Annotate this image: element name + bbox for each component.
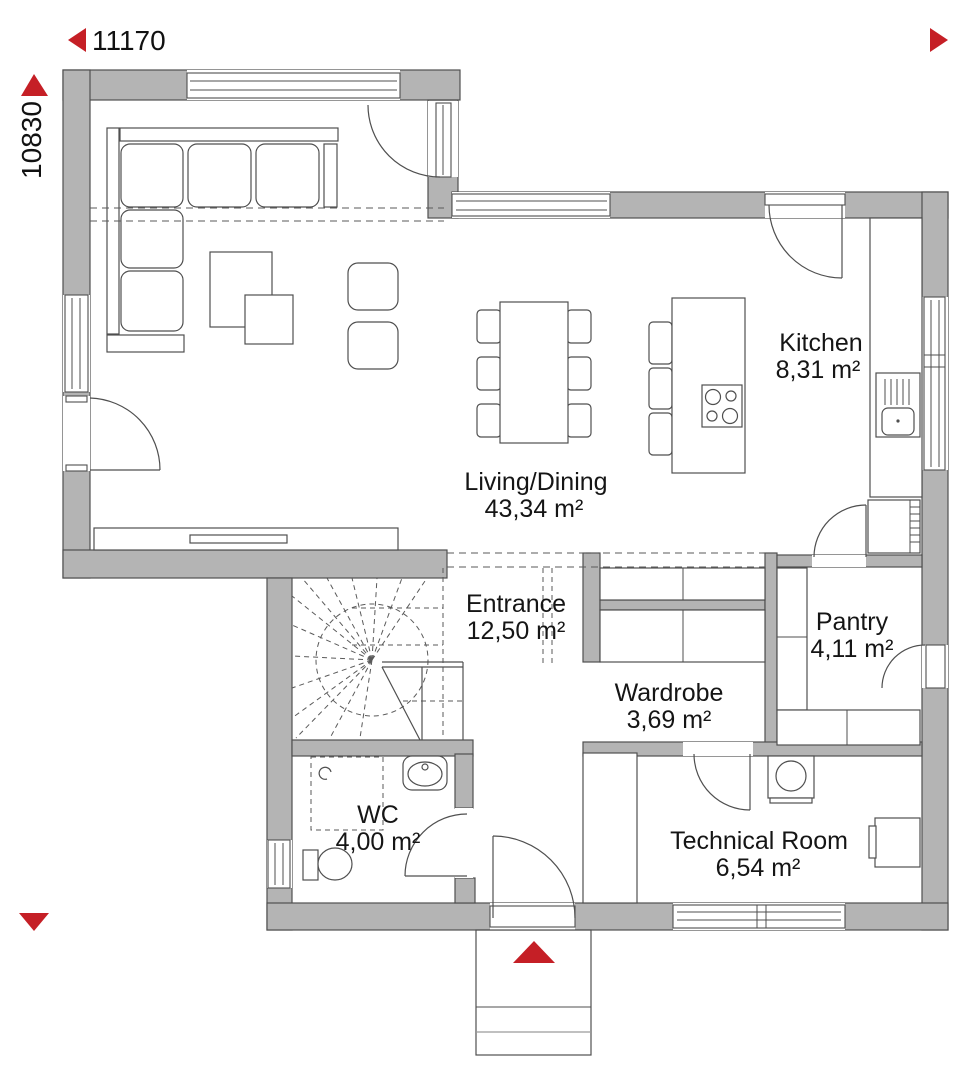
room-label-pantry-area: 4,11 m² (811, 635, 894, 663)
room-label-entrance-area: 12,50 m² (467, 617, 566, 645)
room-label-wardrobe-area: 3,69 m² (627, 706, 712, 734)
entrance-stoop (476, 930, 591, 1055)
room-label-kitchen-area: 8,31 m² (776, 356, 861, 384)
technical-room-door-icon (694, 754, 750, 810)
kitchen-counter (870, 218, 922, 497)
dimension-arrow-down-icon (19, 913, 49, 931)
height-dimension-label: 10830 (16, 101, 47, 179)
room-label-living-name: Living/Dining (464, 468, 607, 496)
dimension-arrow-left-icon (68, 28, 86, 52)
shower-drain-icon (319, 767, 331, 779)
floor-plan-page: 11170 10830 Living/Dining 43,34 m² Kitch… (0, 0, 977, 1080)
dimension-arrow-right-icon (930, 28, 948, 52)
floor-plan-canvas: 11170 10830 Living/Dining 43,34 m² Kitch… (0, 0, 977, 1080)
dining-table (477, 302, 591, 443)
room-label-wardrobe-name: Wardrobe (615, 679, 724, 707)
room-label-entrance-name: Entrance (466, 590, 566, 618)
kitchen-tall-cabinet (868, 500, 920, 553)
cooktop-icon (702, 385, 742, 427)
width-dimension-label: 11170 (92, 25, 166, 56)
living-west-door-icon (90, 398, 160, 470)
kitchen-sink-icon (876, 373, 920, 437)
installation-shaft (583, 753, 637, 903)
sideboard (94, 528, 398, 550)
room-label-technical-name: Technical Room (670, 827, 848, 855)
dimension-arrow-up-icon (21, 74, 48, 96)
kitchen-island (649, 298, 745, 473)
water-heater-icon (869, 818, 920, 867)
washing-machine-icon (768, 756, 814, 803)
wc-sink-icon (403, 756, 447, 790)
room-label-wc-area: 4,00 m² (336, 828, 421, 856)
room-label-technical-area: 6,54 m² (716, 854, 801, 882)
pouf (348, 263, 398, 369)
room-label-pantry-name: Pantry (816, 608, 889, 636)
coffee-table (210, 252, 293, 344)
room-label-living-area: 43,34 m² (485, 495, 584, 523)
room-label-wc-name: WC (357, 801, 399, 829)
entrance-arrow-icon (513, 941, 555, 963)
wardrobe-closet (600, 568, 765, 662)
room-label-kitchen-name: Kitchen (779, 329, 862, 357)
pantry-kitchen-door-icon (814, 505, 866, 557)
open-passage (447, 553, 765, 567)
